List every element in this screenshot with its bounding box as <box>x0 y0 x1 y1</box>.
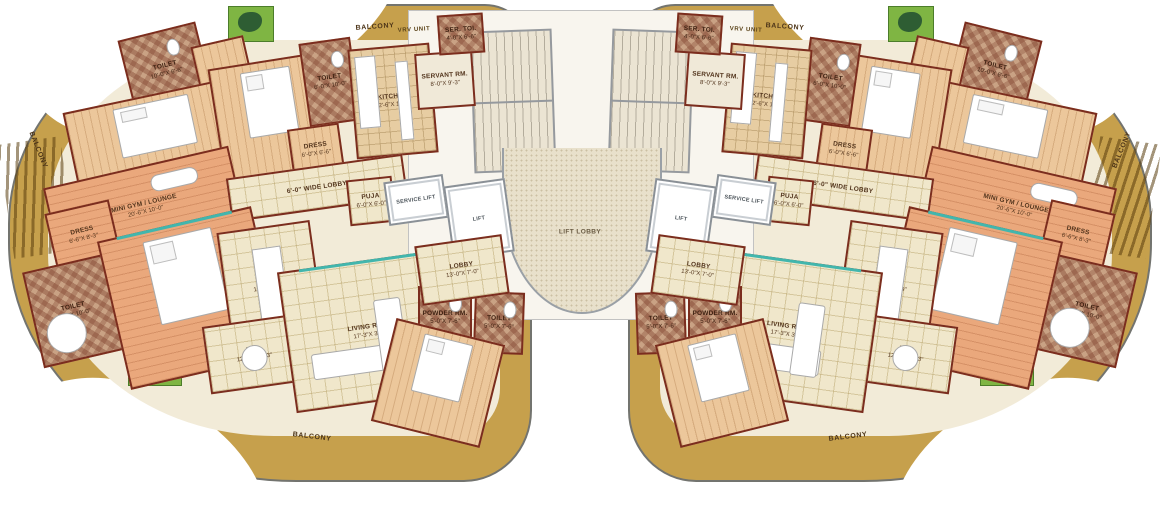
room-name: POWDER RM. <box>693 310 738 317</box>
room-service-lift-left: SERVICE LIFT <box>383 174 449 226</box>
bed-symbol <box>142 227 229 325</box>
room-dimensions: 5'-0"X 7'-6" <box>484 323 514 331</box>
room-name: LIFT <box>674 215 687 223</box>
room-dimensions: 6'-0"X 10'-0" <box>314 81 348 92</box>
room-name: LOBBY <box>686 261 711 272</box>
room-dimensions: 5'-0"X 7'-6" <box>700 319 730 326</box>
room-ser-toi-right: SER. TOI.4'-0"X 6'-6" <box>675 12 724 55</box>
room-name: PUJA <box>361 193 380 202</box>
wc-symbol <box>503 301 517 318</box>
room-name: SERVANT RM. <box>421 71 468 82</box>
wc-symbol <box>165 37 182 57</box>
room-lobby-right: LOBBY13'-0"X 7'-0" <box>650 234 745 306</box>
room-dimensions: 5'-0"X 7'-6" <box>430 319 460 326</box>
room-dimensions: 6'-0"X 6'-6" <box>301 149 331 160</box>
room-dimensions: 20'-6"X 10'-0" <box>128 205 165 220</box>
bed-symbol <box>240 66 299 139</box>
room-name: SER. TOI. <box>445 25 477 35</box>
room-servant-rm-left: SERVANT RM.8'-0"X 9'-3" <box>414 50 476 110</box>
room-name: LOBBY <box>449 261 474 272</box>
wc-symbol <box>836 52 851 71</box>
treadmill-symbol <box>149 165 200 192</box>
room-dimensions: 13'-0"X 7'-0" <box>446 269 480 280</box>
room-label: LOBBY13'-0"X 7'-0" <box>417 236 508 303</box>
bed-symbol <box>112 94 198 159</box>
room-dimensions: 5'-0"X 7'-6" <box>646 323 676 331</box>
wc-symbol <box>1003 43 1020 63</box>
room-label: SERVICE LIFT <box>385 176 446 223</box>
room-dimensions: 20'-6"X 10'-0" <box>996 205 1033 220</box>
floor-plan: TOILET10'-0"X 6'-6"TOILET10'-0"X 6'-6"DR… <box>0 0 1160 510</box>
room-ser-toi-left: SER. TOI.4'-0"X 6'-6" <box>437 12 486 55</box>
bed-symbol <box>931 227 1018 325</box>
counter-symbol <box>354 56 381 129</box>
bartable-symbol <box>891 343 920 372</box>
room-dimensions: 13'-0"X 7'-0" <box>681 269 715 280</box>
room-dimensions: 4'-0"X 6'-6" <box>446 34 476 43</box>
room-name: TOILET <box>317 73 342 84</box>
room-name: SERVICE LIFT <box>396 194 436 206</box>
room-dimensions: 4'-0"X 6'-6" <box>684 34 714 43</box>
room-dimensions: 8'-0"X 9'-3" <box>700 80 730 89</box>
room-dimensions: 10'-0"X 6'-6" <box>976 67 1010 81</box>
room-dimensions: 8'-0"X 9'-3" <box>430 80 460 89</box>
room-name: DRESS <box>70 225 94 238</box>
room-label: SERVANT RM.8'-0"X 9'-3" <box>416 52 473 108</box>
room-name: POWDER RM. <box>423 310 468 317</box>
bartable-symbol <box>240 343 269 372</box>
room-name: 6'-0" WIDE LOBBY <box>812 180 873 196</box>
room-dimensions: 6'-6"X 8'-3" <box>1061 233 1091 246</box>
room-dimensions: 6'-0"X 6'-6" <box>828 149 858 160</box>
room-name: TOILET <box>152 60 177 73</box>
room-name: SER. TOI. <box>683 25 715 35</box>
room-lobby-left: LOBBY13'-0"X 7'-0" <box>414 234 509 306</box>
room-service-lift-right: SERVICE LIFT <box>711 174 777 226</box>
room-name: MINI GYM / LOUNGE <box>111 193 178 215</box>
room-dimensions: 10'-0"X 6'-6" <box>150 67 184 81</box>
room-dimensions: 6'-0"X 6'-0" <box>773 200 803 210</box>
room-label: LOBBY13'-0"X 7'-0" <box>653 236 744 303</box>
room-name: 6'-0" WIDE LOBBY <box>286 180 347 196</box>
room-label: SERVANT RM.8'-0"X 9'-3" <box>686 52 743 108</box>
room-name: SERVANT RM. <box>692 71 739 82</box>
bed-symbol <box>861 66 920 139</box>
wc-symbol <box>330 50 345 69</box>
bed-symbol <box>411 333 473 402</box>
room-name: TOILET <box>818 73 843 84</box>
bed-symbol <box>687 333 749 402</box>
room-name: DRESS <box>1066 225 1090 238</box>
wc-symbol <box>664 300 678 317</box>
tub-symbol <box>1046 304 1094 352</box>
room-label: SERVICE LIFT <box>713 176 774 223</box>
room-dimensions: 6'-0"X 10'-0" <box>813 81 847 92</box>
room-name: SERVICE LIFT <box>724 194 764 206</box>
room-name: TOILET <box>982 60 1007 73</box>
room-name: DRESS <box>303 141 327 152</box>
room-servant-rm-right: SERVANT RM.8'-0"X 9'-3" <box>684 50 746 110</box>
room-name: TOILET <box>61 301 86 314</box>
room-name: DRESS <box>832 141 856 152</box>
room-dimensions: 6'-0"X 6'-0" <box>356 200 386 210</box>
room-label: SER. TOI.4'-0"X 6'-6" <box>439 15 483 54</box>
room-label: SER. TOI.4'-0"X 6'-6" <box>677 15 721 54</box>
tub-symbol <box>43 310 91 358</box>
room-name: LIFT <box>472 215 485 223</box>
room-dimensions: 6'-6"X 8'-3" <box>69 233 99 246</box>
bed-symbol <box>962 94 1048 159</box>
room-name: PUJA <box>780 193 799 202</box>
